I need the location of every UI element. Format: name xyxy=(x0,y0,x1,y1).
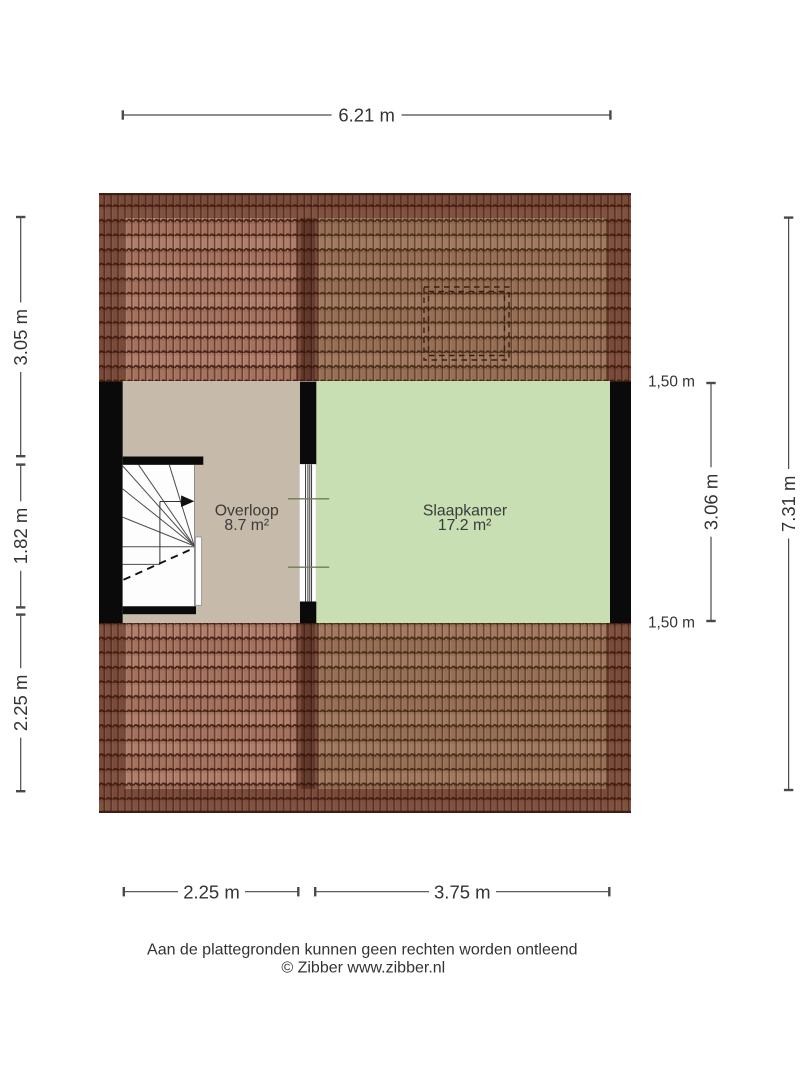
svg-text:7.31 m: 7.31 m xyxy=(778,476,799,533)
svg-text:1.82 m: 1.82 m xyxy=(10,508,31,565)
svg-text:3.06 m: 3.06 m xyxy=(701,474,722,531)
svg-text:© Zibber www.zibber.nl: © Zibber www.zibber.nl xyxy=(281,960,445,977)
svg-text:1,50 m: 1,50 m xyxy=(648,374,695,391)
svg-text:3.05 m: 3.05 m xyxy=(10,309,31,366)
svg-text:6.21 m: 6.21 m xyxy=(338,105,395,126)
svg-text:8.7 m²: 8.7 m² xyxy=(224,517,269,534)
svg-text:2.25 m: 2.25 m xyxy=(10,675,31,732)
svg-text:2.25 m: 2.25 m xyxy=(183,881,240,902)
svg-text:1,50 m: 1,50 m xyxy=(648,615,695,632)
svg-text:17.2 m²: 17.2 m² xyxy=(438,517,492,534)
svg-text:3.75 m: 3.75 m xyxy=(434,881,491,902)
svg-text:Aan de plattegronden kunnen ge: Aan de plattegronden kunnen geen rechten… xyxy=(147,942,578,959)
